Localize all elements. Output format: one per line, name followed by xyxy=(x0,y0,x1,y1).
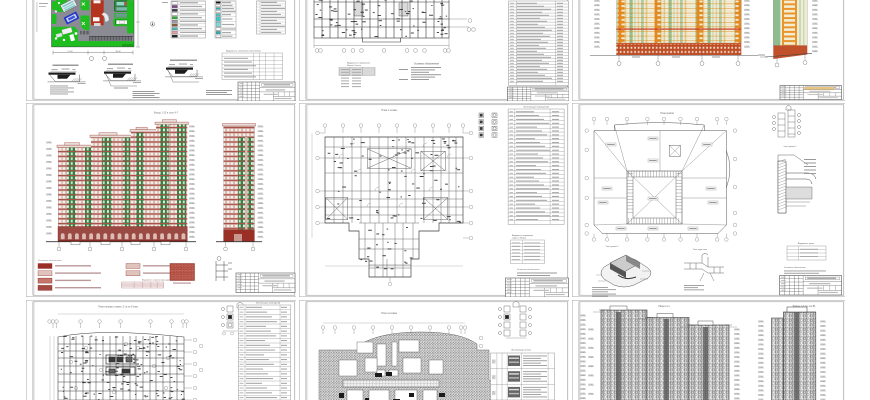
svg-text:57.00: 57.00 xyxy=(67,51,73,53)
svg-text:План техэтажа: План техэтажа xyxy=(381,313,398,315)
svg-text:36.00: 36.00 xyxy=(115,51,121,53)
svg-text:Узел водостока: Узел водостока xyxy=(693,249,708,251)
svg-text:Экспликация полов: Экспликация полов xyxy=(511,350,532,352)
svg-text:Экспликация помещений: Экспликация помещений xyxy=(523,106,549,109)
svg-text:Условные обозначения: Условные обозначения xyxy=(517,269,539,271)
svg-text:Узел кровли 2: Узел кровли 2 xyxy=(605,246,619,248)
svg-text:Ведомость узлов: Ведомость узлов xyxy=(798,243,814,245)
svg-text:План 1 этажа: План 1 этажа xyxy=(381,109,397,112)
svg-text:План кровли: План кровли xyxy=(660,113,674,115)
svg-text:План типового этажа с 2-го по: План типового этажа с 2-го по 9 этаж xyxy=(98,307,138,309)
svg-text:Ведомость элементов озеленения: Ведомость элементов озеленения xyxy=(226,50,262,52)
svg-text:Серия и Марка: Серия и Марка xyxy=(512,238,527,240)
svg-text:Условные обозначения: Условные обозначения xyxy=(38,260,62,262)
svg-text:Марка / Кол-во: Марка / Кол-во xyxy=(347,65,362,67)
svg-text:Ведомость отделки фасадов: Ведомость отделки фасадов xyxy=(142,279,171,282)
svg-text:Экспликация помещений: Экспликация помещений xyxy=(255,302,280,305)
svg-text:Условные обозначения: Условные обозначения xyxy=(784,267,806,269)
svg-text:Узел кровли 1: Узел кровли 1 xyxy=(783,146,797,148)
svg-text:Фасад 1-15 в осях А-Г: Фасад 1-15 в осях А-Г xyxy=(153,112,178,115)
svg-text:Условные обозначения: Условные обозначения xyxy=(414,63,440,65)
svg-text:Разрез 1-1: Разрез 1-1 xyxy=(658,306,670,308)
